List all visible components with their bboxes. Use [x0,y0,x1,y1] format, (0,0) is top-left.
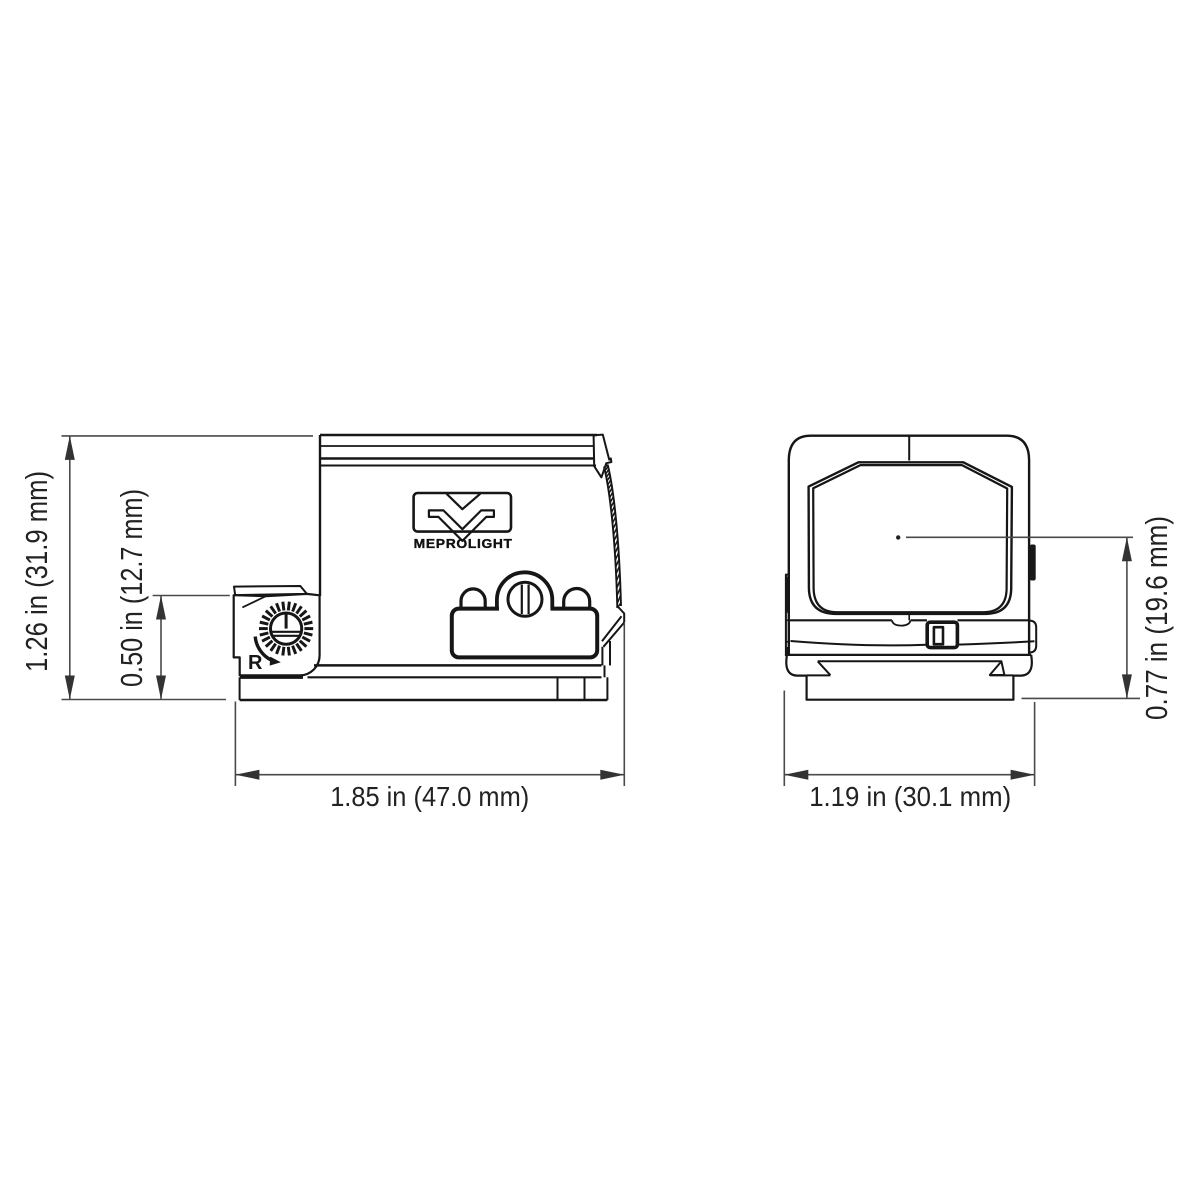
svg-text:1.19 in (30.1 mm): 1.19 in (30.1 mm) [809,781,1011,812]
svg-text:MEPROLIGHT: MEPROLIGHT [414,536,513,551]
svg-text:0.77 in (19.6 mm): 0.77 in (19.6 mm) [1140,516,1174,720]
svg-text:1.85 in (47.0 mm): 1.85 in (47.0 mm) [330,781,529,812]
svg-text:0.50 in (12.7 mm): 0.50 in (12.7 mm) [115,489,149,687]
svg-text:R: R [248,652,263,674]
svg-text:1.26 in (31.9 mm): 1.26 in (31.9 mm) [20,471,54,672]
